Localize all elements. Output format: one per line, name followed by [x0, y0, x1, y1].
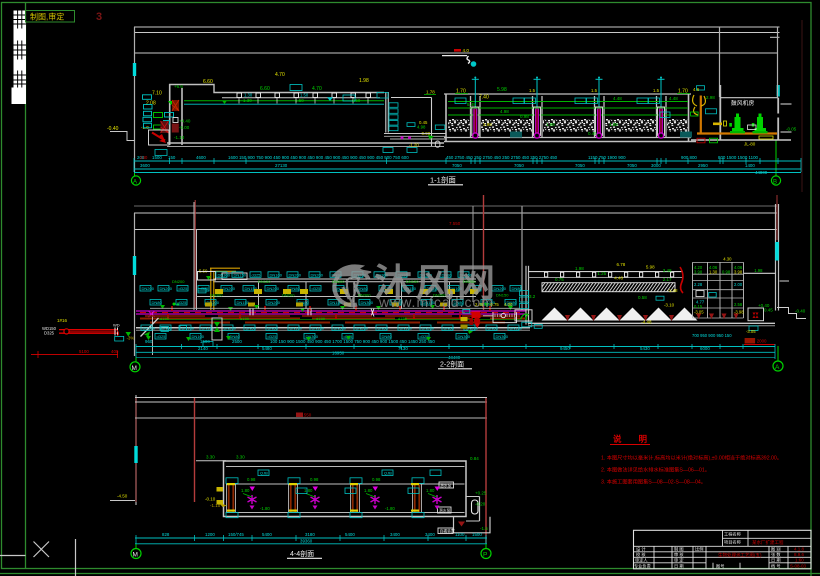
svg-text:5.48: 5.48 [467, 102, 476, 107]
svg-text:DN200: DN200 [142, 286, 155, 291]
svg-text:DN150: DN150 [406, 279, 419, 284]
svg-text:27130: 27130 [275, 163, 288, 168]
svg-text:2.17: 2.17 [663, 277, 672, 282]
svg-text:0.75: 0.75 [555, 277, 564, 282]
svg-text:DN200: DN200 [463, 279, 476, 284]
svg-text:d325: d325 [200, 286, 210, 291]
svg-text:P: P [483, 552, 487, 559]
svg-text:5400: 5400 [262, 532, 272, 537]
svg-text:0.15: 0.15 [694, 304, 703, 309]
svg-text:1.98: 1.98 [359, 78, 369, 84]
svg-text:2.08: 2.08 [146, 101, 156, 107]
svg-text:DN80: DN80 [488, 326, 499, 331]
svg-text:0.45: 0.45 [588, 131, 597, 136]
svg-text:-0.10: -0.10 [205, 497, 216, 502]
svg-text:7050: 7050 [452, 163, 462, 168]
svg-text:4.48: 4.48 [669, 96, 678, 101]
svg-text:3400: 3400 [425, 532, 435, 537]
svg-text:2500: 2500 [232, 339, 242, 344]
svg-text:M: M [132, 365, 137, 372]
svg-text:DN200: DN200 [311, 272, 324, 277]
svg-text:d159: d159 [316, 316, 326, 321]
svg-text:4600: 4600 [196, 155, 206, 160]
svg-text:0.98: 0.98 [372, 477, 381, 482]
svg-text:1200: 1200 [205, 532, 215, 537]
svg-text:DN200: DN200 [282, 293, 295, 298]
svg-text:1.78: 1.78 [426, 90, 435, 95]
svg-text:7050: 7050 [575, 163, 585, 168]
svg-text:0.45: 0.45 [764, 308, 773, 313]
svg-text:4.98: 4.98 [500, 109, 509, 114]
svg-text:DN200: DN200 [223, 286, 236, 291]
svg-text:d159: d159 [160, 316, 170, 321]
svg-text:3. 本施工图套用图集S—08—02-S—08—04。: 3. 本施工图套用图集S—08—02-S—08—04。 [601, 478, 706, 486]
svg-text:DN150: DN150 [496, 293, 509, 298]
svg-text:DN300: DN300 [496, 334, 509, 339]
svg-text:DN300: DN300 [334, 326, 347, 331]
svg-text:DN80: DN80 [246, 326, 257, 331]
svg-text:2000: 2000 [757, 339, 767, 344]
svg-text:d325: d325 [179, 286, 189, 291]
svg-text:DN150: DN150 [510, 326, 523, 331]
svg-text:-1.80: -1.80 [385, 506, 395, 511]
svg-text:4.48: 4.48 [614, 276, 623, 281]
svg-text:4.1.8: 4.1.8 [794, 547, 805, 552]
svg-text:生物处理池工艺图(五): 生物处理池工艺图(五) [718, 552, 762, 559]
svg-text:800 1500 1500 1100: 800 1500 1500 1100 [718, 155, 759, 160]
svg-text:鼓风机房: 鼓风机房 [731, 99, 755, 107]
svg-text:3.2: 3.2 [529, 294, 536, 299]
svg-text:D325: D325 [44, 331, 55, 336]
svg-text:-0.40: -0.40 [107, 126, 119, 132]
svg-text:DN300: DN300 [218, 272, 231, 277]
svg-text:1500: 1500 [152, 155, 162, 160]
svg-text:1. 本图尺寸均以毫米计,标高均以米计(绝对标高),±0.0: 1. 本图尺寸均以毫米计,标高均以米计(绝对标高),±0.00相当于绝对标高39… [601, 454, 782, 462]
svg-text:1.50: 1.50 [352, 98, 361, 103]
svg-text:+6.6: +6.6 [174, 84, 183, 89]
svg-text:2.98: 2.98 [706, 95, 715, 100]
svg-text:S-08-03: S-08-03 [790, 563, 807, 568]
svg-text:档 号: 档 号 [771, 562, 781, 569]
svg-text:-0.75: -0.75 [489, 302, 499, 307]
svg-text:某水厂扩建工程: 某水厂扩建工程 [752, 539, 784, 546]
svg-text:3400: 3400 [390, 532, 400, 537]
svg-text:2.28: 2.28 [694, 282, 703, 287]
svg-text:QJB: QJB [260, 471, 268, 476]
svg-text:1#16: 1#16 [57, 318, 68, 323]
svg-text:3.30: 3.30 [236, 455, 245, 460]
svg-text:A: A [133, 180, 137, 186]
svg-text:DN150: DN150 [312, 326, 325, 331]
svg-text:3.98: 3.98 [734, 270, 743, 275]
svg-text:1600 150 900 750 900 450 900 4: 1600 150 900 750 900 450 900 450 900 450… [228, 155, 409, 160]
svg-text:DN150: DN150 [202, 326, 215, 331]
svg-text:0.84: 0.84 [470, 456, 479, 461]
svg-text:d159: d159 [240, 316, 250, 321]
svg-text:DN80: DN80 [152, 300, 163, 305]
svg-text:DN200: DN200 [172, 279, 185, 284]
svg-text:1:60: 1:60 [795, 558, 804, 563]
svg-text:DN200: DN200 [332, 279, 345, 284]
svg-text:1.80: 1.80 [241, 488, 250, 493]
svg-text:M: M [133, 552, 138, 559]
svg-text:7.550: 7.550 [449, 221, 461, 226]
svg-text:-3%: -3% [127, 336, 135, 341]
svg-text:2-2剖面: 2-2剖面 [440, 360, 464, 369]
svg-text:DN200: DN200 [268, 300, 281, 305]
svg-text:-0.40: -0.40 [795, 309, 806, 314]
svg-text:专业负责: 专业负责 [634, 562, 651, 569]
svg-text:16950: 16950 [332, 351, 345, 356]
svg-text:DN200: DN200 [433, 293, 446, 298]
svg-text:DN100: DN100 [270, 272, 283, 277]
svg-text:-4.50: -4.50 [117, 494, 128, 499]
svg-text:1.80: 1.80 [364, 488, 373, 493]
svg-text:DN200: DN200 [289, 272, 302, 277]
svg-text:d325: d325 [312, 286, 322, 291]
svg-text:3000: 3000 [651, 163, 661, 168]
svg-text:1.50: 1.50 [300, 93, 309, 98]
svg-text:DN200: DN200 [422, 326, 435, 331]
svg-text:1100: 1100 [455, 532, 465, 537]
svg-text:-5.00: -5.00 [179, 125, 190, 130]
svg-text:5400: 5400 [345, 532, 355, 537]
svg-text:39360: 39360 [300, 539, 313, 544]
svg-text:4-4剖面: 4-4剖面 [290, 549, 314, 558]
svg-text:700 950 900 950 150: 700 950 900 950 150 [692, 333, 732, 338]
svg-text:1.98: 1.98 [575, 266, 584, 271]
svg-text:1.5: 1.5 [591, 88, 598, 93]
svg-text:-3.05: -3.05 [746, 329, 756, 334]
svg-text:2. 本图做法详见给水排水标准图集S—06—01。: 2. 本图做法详见给水排水标准图集S—06—01。 [601, 466, 710, 474]
svg-text:工程名称: 工程名称 [724, 531, 741, 538]
svg-text:1400: 1400 [745, 163, 755, 168]
svg-text:d325: d325 [252, 272, 262, 277]
svg-text:-0.20: -0.20 [475, 502, 486, 507]
svg-text:1.25: 1.25 [597, 271, 606, 276]
svg-text:2.58: 2.58 [734, 302, 743, 307]
svg-text:d159: d159 [398, 316, 408, 321]
svg-text:3180: 3180 [305, 532, 315, 537]
svg-text:828: 828 [162, 532, 170, 537]
svg-text:项目名称: 项目名称 [724, 539, 741, 546]
svg-text:-4.48: -4.48 [641, 320, 652, 325]
svg-text:0.98: 0.98 [247, 477, 256, 482]
svg-text:WD: WD [113, 323, 120, 328]
svg-text:DN100: DN100 [290, 326, 303, 331]
svg-text:潜水泵: 潜水泵 [439, 508, 451, 513]
svg-text:d325: d325 [178, 300, 188, 305]
svg-text:2.00: 2.00 [734, 282, 743, 287]
svg-text:A: A [775, 364, 780, 371]
svg-text:960: 960 [145, 339, 153, 344]
svg-text:1150 750 1900 900: 1150 750 1900 900 [588, 155, 626, 160]
svg-text:240: 240 [140, 155, 148, 160]
svg-text:0.58: 0.58 [638, 295, 647, 300]
svg-text:DN200: DN200 [267, 286, 280, 291]
svg-text:DN150: DN150 [258, 279, 271, 284]
svg-text:1.98: 1.98 [609, 122, 618, 127]
svg-text:DN300: DN300 [358, 293, 371, 298]
svg-text:1.80: 1.80 [304, 488, 313, 493]
svg-text:4.48: 4.48 [613, 96, 622, 101]
svg-text:0.98: 0.98 [520, 114, 529, 119]
svg-text:+0.25: +0.25 [475, 491, 487, 496]
svg-text:3.30: 3.30 [206, 455, 215, 460]
svg-text:d325: d325 [157, 334, 167, 339]
svg-text:1.98: 1.98 [754, 268, 763, 273]
svg-text:1.30: 1.30 [243, 98, 252, 103]
svg-text:B: B [773, 180, 777, 186]
svg-text:潜水泵: 潜水泵 [440, 483, 452, 488]
svg-text:1.30: 1.30 [709, 270, 718, 275]
svg-text:7050: 7050 [627, 163, 637, 168]
svg-text:5.98: 5.98 [497, 87, 507, 93]
svg-text:-1.5: -1.5 [480, 526, 488, 531]
svg-text:1-1剖面: 1-1剖面 [430, 175, 456, 185]
svg-text:DN300: DN300 [458, 334, 471, 339]
svg-text:4.30: 4.30 [723, 257, 732, 262]
svg-text:-3.10: -3.10 [664, 303, 675, 308]
svg-text:-1.80: -1.80 [260, 506, 270, 511]
svg-text:150/745: 150/745 [228, 532, 244, 537]
svg-text:说明: 说明 [613, 434, 664, 444]
svg-text:5100: 5100 [79, 349, 89, 354]
svg-text:3.98: 3.98 [694, 270, 703, 275]
svg-text:DN100: DN100 [182, 326, 195, 331]
svg-text:4.0: 4.0 [463, 48, 470, 53]
svg-text:DN80: DN80 [268, 326, 279, 331]
svg-text:3.98: 3.98 [483, 122, 492, 127]
svg-text:450 2750 450 250 2750 450 250: 450 2750 450 250 2750 450 250 2750 450 2… [446, 155, 558, 160]
svg-text:4.98: 4.98 [417, 125, 426, 130]
svg-text:DN80: DN80 [358, 286, 369, 291]
svg-text:900 800: 900 800 [681, 155, 697, 160]
svg-text:3.48: 3.48 [663, 268, 672, 273]
svg-text:4.00: 4.00 [504, 302, 513, 307]
svg-text:1500: 1500 [472, 532, 482, 537]
svg-text:-1.48: -1.48 [667, 288, 678, 293]
svg-text:-1.20: -1.20 [409, 143, 419, 148]
svg-text:DN150: DN150 [237, 300, 250, 305]
svg-text:0.98: 0.98 [310, 477, 319, 482]
svg-text:7050: 7050 [514, 163, 524, 168]
svg-text:DN300: DN300 [143, 326, 156, 331]
svg-text:DN200: DN200 [356, 326, 369, 331]
svg-text:DN200: DN200 [224, 326, 237, 331]
svg-text:比例: 比例 [695, 546, 703, 553]
svg-text:2.45: 2.45 [475, 302, 484, 307]
svg-text:1.80: 1.80 [426, 488, 435, 493]
svg-text:DN150: DN150 [234, 272, 247, 277]
svg-text:DN300: DN300 [361, 300, 374, 305]
svg-text:1.98: 1.98 [546, 122, 555, 127]
svg-text:自耦装置: 自耦装置 [440, 529, 455, 534]
svg-text:6.60: 6.60 [203, 79, 213, 85]
svg-text:-1.10: -1.10 [174, 135, 185, 140]
svg-text:DN80: DN80 [378, 326, 389, 331]
svg-text:6.78: 6.78 [617, 262, 626, 267]
svg-text:7.40: 7.40 [479, 95, 489, 101]
svg-text:QJB: QJB [384, 471, 392, 476]
svg-text:2950: 2950 [698, 163, 708, 168]
svg-text:DN80: DN80 [444, 326, 455, 331]
svg-text:3600: 3600 [140, 163, 150, 168]
svg-text:0.98: 0.98 [722, 270, 731, 275]
svg-text:8.9.6: 8.9.6 [794, 552, 805, 557]
svg-text:JL-80: JL-80 [744, 142, 756, 147]
svg-text:DN300: DN300 [210, 293, 223, 298]
svg-text:-0.05: -0.05 [786, 127, 797, 132]
svg-text:制图,审定: 制图,审定 [30, 12, 64, 22]
svg-text:4.70: 4.70 [275, 72, 285, 78]
svg-text:5.98: 5.98 [646, 265, 655, 270]
svg-text:DN80: DN80 [290, 286, 301, 291]
svg-text:DN200: DN200 [160, 286, 173, 291]
svg-text:1.30: 1.30 [244, 93, 253, 98]
svg-text:DN100: DN100 [400, 326, 413, 331]
svg-text:100 150 900 1500 450 900 450 1: 100 150 900 1500 450 900 450 1700 1500 7… [270, 339, 435, 344]
svg-text:4.6: 4.6 [693, 87, 700, 92]
svg-text:0.45: 0.45 [419, 120, 428, 125]
svg-text:6.60: 6.60 [260, 86, 270, 92]
svg-text:7.10: 7.10 [152, 91, 162, 97]
svg-text:1.5: 1.5 [653, 88, 660, 93]
svg-text:4.70: 4.70 [312, 86, 322, 92]
svg-text:+4.40: +4.40 [179, 119, 191, 124]
svg-text:3: 3 [96, 11, 102, 23]
svg-text:1.5: 1.5 [529, 88, 536, 93]
